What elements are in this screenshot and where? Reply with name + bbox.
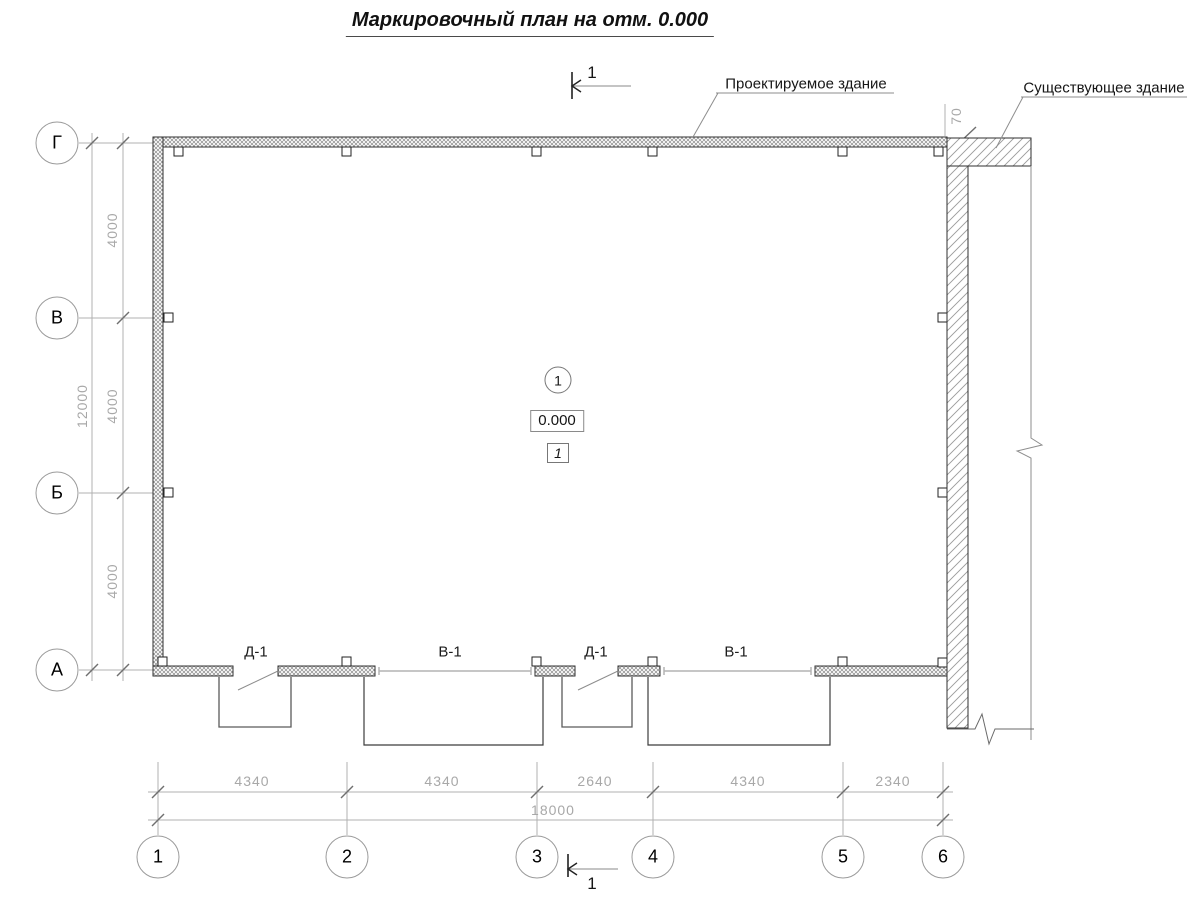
axis-row-a: А [36,649,79,692]
opening-label-gate-1: В-1 [438,644,461,661]
elevation-marker: 0.000 [530,410,584,432]
section-mark-label-top: 1 [587,63,596,83]
axis-row-v: В [36,297,79,340]
opening-label-door-2: Д-1 [584,644,608,661]
axis-col-6: 6 [922,836,965,879]
label-existing-building: Существующее здание [1023,80,1184,97]
axis-col-5: 5 [822,836,865,879]
axis-col-3: 3 [516,836,559,879]
dim-left-seg-2: 4000 [104,388,120,423]
columns [158,147,947,667]
axis-col-4: 4 [632,836,675,879]
room-axis-marker: 1 [545,367,572,394]
gate-opening-lines [379,667,811,675]
door-porches [219,677,632,727]
label-new-building: Проектируемое здание [725,76,886,93]
gate-ramps [364,677,830,745]
dim-bottom-seg-3: 2640 [577,773,612,789]
opening-label-gate-2: В-1 [724,644,747,661]
dimension-lines [79,104,953,835]
dim-gap: 70 [948,107,964,125]
axis-row-b: Б [36,472,79,515]
drawing-title: Маркировочный план на отм. 0.000 [346,9,714,37]
floor-plan-drawing: Маркировочный план на отм. 0.000 Проекти… [0,0,1200,900]
dim-left-seg-3: 4000 [104,563,120,598]
section-mark-label-bottom: 1 [587,874,596,894]
plan-linework [0,0,1200,900]
opening-label-door-1: Д-1 [244,644,268,661]
axis-row-g: Г [36,122,79,165]
room-number-marker: 1 [547,443,569,463]
section-marks [568,72,631,877]
dim-bottom-seg-5: 2340 [875,773,910,789]
dim-bottom-seg-4: 4340 [730,773,765,789]
dim-bottom-total: 18000 [531,802,575,818]
dim-left-seg-1: 4000 [104,212,120,247]
new-building-walls [153,137,947,676]
dim-bottom-seg-1: 4340 [234,773,269,789]
axis-col-1: 1 [137,836,180,879]
axis-col-2: 2 [326,836,369,879]
existing-building [947,138,1042,744]
dim-bottom-seg-2: 4340 [424,773,459,789]
dim-left-total: 12000 [74,384,90,428]
